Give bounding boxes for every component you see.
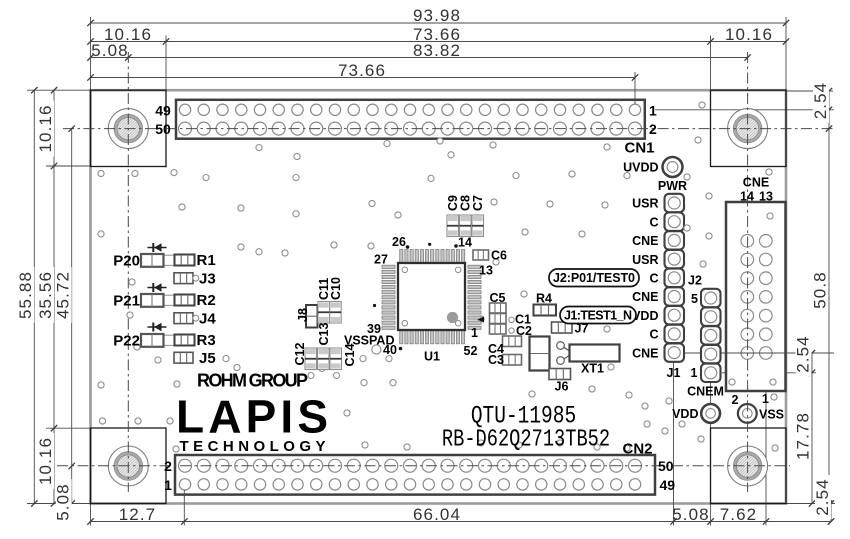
svg-text:LAPIS: LAPIS: [176, 391, 328, 443]
svg-text:2: 2: [732, 393, 739, 407]
svg-text:C6: C6: [491, 249, 507, 263]
svg-text:TECHNOLOGY: TECHNOLOGY: [180, 438, 326, 455]
svg-text:5: 5: [691, 292, 698, 306]
svg-text:CNE: CNE: [632, 346, 658, 360]
svg-text:93.98: 93.98: [413, 6, 461, 25]
svg-text:2.54: 2.54: [811, 82, 830, 120]
svg-text:J4: J4: [199, 311, 216, 328]
svg-text:CNEM: CNEM: [687, 385, 724, 399]
svg-text:C12: C12: [293, 343, 307, 366]
svg-text:50: 50: [658, 458, 674, 474]
svg-text:CNE: CNE: [632, 234, 658, 248]
svg-text:1: 1: [649, 103, 657, 119]
svg-text:7.62: 7.62: [720, 505, 758, 524]
svg-text:1: 1: [471, 326, 478, 340]
svg-text:5.08: 5.08: [91, 41, 129, 60]
svg-text:R1: R1: [197, 252, 216, 269]
svg-text:R2: R2: [197, 292, 216, 309]
svg-text:P21: P21: [113, 293, 140, 310]
svg-text:C: C: [649, 215, 658, 229]
svg-text:C2: C2: [516, 324, 532, 338]
svg-text:5.08: 5.08: [54, 483, 73, 521]
svg-text:C: C: [649, 328, 658, 342]
svg-text:14: 14: [740, 190, 754, 204]
svg-text:17.78: 17.78: [793, 412, 812, 460]
svg-text:52: 52: [464, 344, 478, 358]
svg-text:CNE: CNE: [743, 176, 769, 190]
svg-text:2.54: 2.54: [793, 335, 812, 373]
svg-text:J8: J8: [296, 308, 310, 322]
svg-text:C5: C5: [490, 291, 506, 305]
svg-text:14: 14: [458, 236, 472, 250]
svg-text:66.04: 66.04: [413, 505, 461, 524]
svg-text:49: 49: [155, 103, 171, 119]
svg-text:CNE: CNE: [632, 290, 658, 304]
svg-text:5.08: 5.08: [672, 505, 710, 524]
svg-text:U1: U1: [424, 350, 440, 364]
svg-text:PWR: PWR: [658, 179, 687, 193]
svg-text:13: 13: [479, 264, 493, 278]
svg-text:J2: J2: [688, 274, 702, 288]
svg-text:73.66: 73.66: [338, 61, 386, 80]
svg-text:10.16: 10.16: [725, 25, 773, 44]
svg-text:VDD: VDD: [672, 407, 698, 421]
svg-text:J1: J1: [667, 366, 681, 380]
svg-text:2: 2: [649, 121, 657, 137]
svg-text:C10: C10: [329, 277, 343, 300]
svg-text:ROHM GROUP: ROHM GROUP: [197, 371, 308, 391]
svg-text:2.54: 2.54: [813, 478, 832, 516]
svg-text:USR: USR: [632, 253, 658, 267]
svg-text:49: 49: [660, 477, 676, 493]
svg-text:35.56: 35.56: [36, 271, 55, 319]
svg-text:RB-D62Q2713TB52: RB-D62Q2713TB52: [442, 425, 610, 453]
svg-text:P20: P20: [113, 253, 140, 270]
svg-text:J3: J3: [199, 271, 216, 288]
svg-text:2: 2: [164, 458, 172, 474]
svg-text:XT1: XT1: [581, 362, 604, 376]
svg-text:VSS: VSS: [759, 408, 784, 422]
svg-text:P22: P22: [113, 333, 140, 350]
svg-text:UVDD: UVDD: [623, 161, 658, 175]
svg-text:J5: J5: [199, 350, 216, 367]
svg-text:C3: C3: [488, 353, 504, 367]
svg-text:CN2: CN2: [622, 441, 652, 458]
svg-text:CN1: CN1: [624, 140, 654, 157]
svg-text:26: 26: [392, 235, 406, 249]
svg-text:83.82: 83.82: [413, 41, 461, 60]
svg-text:45.72: 45.72: [54, 271, 73, 319]
svg-text:J6: J6: [555, 380, 569, 394]
svg-text:1: 1: [762, 392, 769, 406]
svg-text:C: C: [649, 272, 658, 286]
svg-text:J1:TEST1_N: J1:TEST1_N: [564, 309, 632, 323]
svg-text:50.8: 50.8: [810, 271, 829, 309]
svg-text:50: 50: [155, 121, 171, 137]
svg-text:C7: C7: [471, 195, 485, 211]
svg-text:12.7: 12.7: [119, 505, 157, 524]
svg-text:USR: USR: [632, 197, 658, 211]
svg-text:C13: C13: [317, 323, 331, 346]
svg-text:40: 40: [383, 343, 397, 357]
svg-text:10.16: 10.16: [36, 104, 55, 152]
svg-text:13: 13: [759, 190, 773, 204]
svg-text:J2:P01/TEST0: J2:P01/TEST0: [553, 271, 635, 285]
svg-text:27: 27: [374, 253, 388, 267]
svg-text:R3: R3: [197, 332, 216, 349]
svg-text:1: 1: [164, 477, 172, 493]
svg-text:10.16: 10.16: [36, 437, 55, 485]
svg-text:1: 1: [691, 366, 698, 380]
svg-text:R4: R4: [536, 292, 552, 306]
svg-text:55.88: 55.88: [16, 271, 35, 319]
